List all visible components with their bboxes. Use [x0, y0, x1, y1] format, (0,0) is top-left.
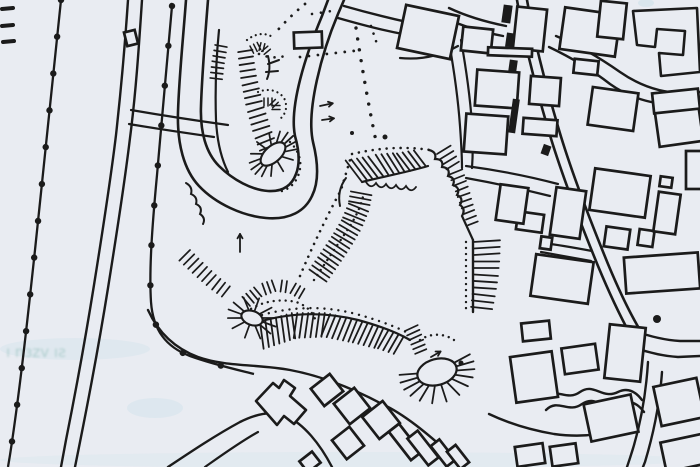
- ladder-nw-long-tick: [345, 213, 357, 218]
- building-footprint: [604, 226, 631, 249]
- building-footprint: [550, 443, 579, 466]
- se-knob-mound-tick: [447, 382, 460, 395]
- ladder-se-short-tick: [329, 265, 336, 270]
- building-footprint: [660, 434, 700, 467]
- ne-lobe-hachures-tick: [468, 221, 478, 225]
- nw-corner-line: [339, 178, 346, 206]
- building-footprint: [464, 114, 509, 155]
- ne-lobe-hachures-tick: [449, 169, 462, 174]
- road-steps-tick: [214, 50, 226, 52]
- ladder-se-short-tick: [320, 277, 327, 282]
- east-scarp-hachures-tick: [471, 307, 492, 309]
- east-scarp-hachures-tick: [474, 281, 497, 282]
- knob-nw-hachures-tick: [415, 349, 426, 354]
- building-footprint: [561, 344, 598, 374]
- solid-building-blob: [541, 144, 552, 156]
- ladder-se-short-tick: [359, 213, 366, 216]
- ne-lobe-hachures-tick: [446, 162, 459, 170]
- map-dot: [653, 315, 661, 323]
- north-rampart-fan-tick: [368, 157, 383, 177]
- south-rampart-fan-tick: [276, 318, 280, 344]
- west-bank-hachures-tick: [253, 126, 269, 131]
- se-knob-mound-outline: [414, 354, 459, 389]
- building-footprint: [686, 151, 700, 189]
- north-rampart-scallops: [366, 182, 416, 190]
- ladder-se-short-tick: [332, 261, 339, 266]
- building-footprint: [588, 87, 639, 131]
- bent-bank-hachures-tick: [246, 294, 254, 303]
- lane-upper: [131, 110, 228, 125]
- oval-mound-nw-tick: [284, 149, 296, 151]
- south-rampart-fan-tick: [271, 319, 275, 345]
- building-footprint: [589, 168, 650, 217]
- bent-bank-hachures-tick: [272, 280, 276, 291]
- map-dot: [459, 361, 464, 366]
- map-dot: [350, 131, 354, 135]
- star-mound-sw-tick: [229, 309, 242, 314]
- below-u-road-fan-tick: [222, 286, 230, 296]
- oval-mound-nw-tick: [277, 161, 283, 171]
- road-steps-tick: [212, 61, 224, 63]
- west-bank-hachures-tick: [251, 120, 267, 125]
- ladder-nw-long-tick: [347, 208, 359, 213]
- antler-3: [266, 71, 278, 72]
- building-footprint: [510, 351, 558, 402]
- ladder-se-short-tick: [326, 269, 333, 274]
- road-steps-tick: [211, 67, 223, 68]
- star-mound-sw-tick: [262, 322, 275, 327]
- ladder-se-short-tick: [361, 209, 368, 212]
- ladder-se-short-tick: [348, 235, 355, 239]
- ladder-nw-long-tick: [350, 196, 363, 198]
- ne-lobed-scarp: [429, 150, 473, 240]
- west-bank-hachures-tick: [238, 50, 252, 52]
- oval-mound-nw-tick: [262, 166, 267, 177]
- south-rampart-fan-tick: [299, 313, 302, 338]
- west-bank-hachures-tick: [246, 101, 262, 105]
- ne-lobe-hachures-tick: [454, 181, 466, 186]
- south-rampart-fan-tick: [305, 313, 308, 337]
- knob-nw-hachures-tick: [413, 344, 425, 349]
- se-knob-dotted-arc: [420, 335, 454, 340]
- bent-bank-hachures-tick: [267, 282, 271, 293]
- building-footprint: [653, 192, 680, 235]
- ladder-se-short-tick: [350, 231, 357, 235]
- map-canvas: ı nɜzv ıƨ: [0, 0, 700, 467]
- east-scarp-hachures-tick: [472, 300, 494, 302]
- building-footprint: [488, 47, 532, 57]
- ladder-se-short-tick: [337, 252, 344, 256]
- se-knob-mound-tick: [400, 374, 418, 375]
- below-u-road-fan-tick: [188, 258, 198, 268]
- building-footprint: [653, 378, 700, 426]
- below-u-road-fan-tick: [212, 279, 220, 290]
- bent-bank-hachures-tick: [295, 286, 301, 296]
- se-knob-mound-tick: [456, 369, 474, 370]
- building-footprint: [604, 324, 645, 381]
- north-rampart-fan-tick: [408, 151, 421, 168]
- building-footprint: [529, 76, 561, 106]
- knob-nw-hachures-tick: [405, 325, 418, 331]
- west-bank-hachures-tick: [240, 69, 255, 71]
- bent-bank-hachures-tick: [254, 287, 262, 296]
- north-rampart-fan-tick: [387, 154, 399, 173]
- scan-smudge: [127, 398, 183, 418]
- ladder-se-short-tick: [363, 199, 371, 200]
- parish-boundary-west: [8, 0, 61, 467]
- building-footprint: [397, 5, 459, 59]
- edge-tick-3: [3, 41, 14, 42]
- lane-to-castle-ns-1: [449, 42, 462, 168]
- north-rampart-fan-tick: [381, 154, 394, 174]
- north-rampart-fan-tick: [414, 150, 426, 166]
- hook1-hachures-tick: [264, 49, 270, 54]
- ne-lobe-hachures-tick: [437, 146, 451, 154]
- building-footprint: [515, 443, 546, 467]
- building-footprint: [530, 254, 593, 304]
- building-footprint: [584, 394, 639, 441]
- star-mound-sw-tick: [234, 302, 245, 311]
- se-knob-mound-tick: [455, 375, 473, 378]
- below-u-road-fan-tick: [193, 263, 203, 273]
- ne-lobe-hachures-tick: [443, 156, 456, 164]
- scan-smudge: [638, 0, 654, 7]
- west-bank-hachures-tick: [245, 95, 260, 99]
- antler-1: [267, 56, 269, 79]
- north-rampart-fan-tick: [403, 152, 416, 169]
- ne-lobe-hachures-tick: [462, 205, 473, 209]
- west-bank-hachures-tick: [243, 82, 258, 85]
- bent-bank-hachures-tick: [285, 281, 287, 292]
- ladder-se-short-tick: [343, 244, 350, 248]
- south-rampart-fan-tick: [281, 316, 284, 342]
- ladder-se-short-tick: [357, 218, 364, 221]
- east-scarp-hachures-tick: [473, 240, 500, 242]
- bent-bank-hachures-tick: [299, 289, 305, 299]
- road-steps-tick: [210, 78, 222, 79]
- building-footprint: [513, 7, 547, 52]
- building-footprint: [124, 30, 138, 46]
- building-footprint: [624, 252, 700, 293]
- west-bank-hachures-tick: [241, 76, 256, 78]
- ladder-se-short-tick: [323, 273, 330, 278]
- se-knob-mound-tick: [452, 379, 468, 387]
- edge-tick-2: [2, 25, 13, 26]
- east-scarp-hachures-tick: [474, 253, 500, 255]
- ne-lobe-hachures-tick: [464, 210, 474, 214]
- south-rampart-fan-tick: [286, 315, 289, 341]
- east-scarp-hachures-tick: [473, 294, 495, 296]
- bent-bank-hachures-tick: [290, 283, 296, 293]
- courtyard-building: [633, 8, 700, 76]
- south-rampart-fan-tick: [316, 313, 319, 337]
- bent-bank-hachures-tick: [262, 284, 266, 295]
- ladder-se-short-tick: [345, 240, 352, 244]
- oval-mound-nw-tick: [276, 131, 280, 142]
- ne-lobe-hachures-tick: [458, 193, 470, 197]
- star-mound-sw-tick: [245, 325, 250, 338]
- east-scarp-hachures-tick: [473, 287, 496, 288]
- west-bank-hachures-tick: [240, 63, 254, 65]
- ladder-se-short-tick: [364, 194, 372, 195]
- below-u-road-fan-tick: [217, 283, 225, 293]
- bent-bank-hachures-tick: [250, 291, 258, 300]
- knob-nw-hachures-tick: [411, 340, 423, 345]
- hook1-hachures-tick: [254, 44, 258, 51]
- scanned-map-page: ı nɜzv ıƨ: [0, 0, 700, 467]
- ladder-nw-long-tick: [349, 204, 361, 209]
- star-mound-sw-tick: [255, 326, 260, 339]
- below-u-road-fan-tick: [197, 267, 207, 277]
- east-scarp-hachures-tick: [474, 274, 498, 276]
- ladder-se-short-tick: [362, 204, 370, 205]
- se-knob-mound-tick: [401, 378, 418, 383]
- below-u-road-fan-tick: [207, 275, 216, 285]
- building-footprint: [496, 184, 529, 224]
- edge-tick-1: [2, 8, 13, 9]
- bleed-through-text: ı nɜzv ıƨ: [6, 343, 66, 361]
- west-bank-hachures-tick: [239, 56, 253, 58]
- flow-arrow-2-head: [328, 102, 333, 104]
- west-bank-hachures-tick: [248, 107, 264, 112]
- se-knob-mound-tick: [432, 385, 435, 403]
- solid-building-blob: [501, 4, 512, 23]
- ladder-nw-long-tick: [339, 225, 350, 232]
- map-dot: [383, 135, 388, 140]
- enclosure-north-edge: [352, 148, 430, 154]
- ladder-nw-long-tick: [351, 191, 364, 193]
- knob-nw-hachures-tick: [407, 330, 419, 336]
- ne-lobe-hachures-tick: [440, 151, 453, 159]
- road-steps-tick: [211, 72, 223, 73]
- road-steps-tick: [213, 56, 225, 58]
- road-a-west-edge: [61, 0, 128, 467]
- north-rampart-fan-tick: [376, 155, 389, 175]
- south-rampart-fan-tick: [310, 313, 313, 337]
- building-footprint: [521, 321, 551, 342]
- ladder-se-short-tick: [353, 227, 360, 231]
- west-bank-hachures-tick: [244, 88, 259, 91]
- ladder-se-short-tick: [340, 248, 347, 252]
- building-footprint: [294, 32, 323, 49]
- hook-dotted-1: [247, 34, 274, 40]
- dotted-top-path: [356, 28, 377, 146]
- church-like-building: [256, 380, 306, 425]
- ne-lobe-hachures-tick: [466, 216, 476, 220]
- oval-mound-nw-tick: [282, 157, 293, 160]
- bent-bank-hachures-tick: [280, 280, 282, 291]
- building-footprint: [573, 59, 598, 75]
- star-mound-sw-tick: [254, 298, 259, 311]
- building-footprint: [522, 118, 557, 136]
- below-u-road-fan-tick: [202, 271, 211, 281]
- building-footprint: [652, 89, 700, 114]
- road-a-east-edge: [75, 0, 142, 467]
- building-footprint: [550, 187, 586, 239]
- east-scarp-hachures-tick: [473, 247, 499, 249]
- se-knob-mound-tick: [420, 385, 429, 400]
- west-bank-hachures-tick: [250, 113, 266, 118]
- ladder-se-short-tick: [334, 257, 341, 261]
- ladder-nw-long-tick: [349, 201, 362, 203]
- dotted-diag-top: [276, 4, 305, 32]
- ladder-se-short-tick: [355, 222, 362, 225]
- oval-mound-nw-tick: [269, 133, 271, 145]
- building-footprint: [597, 1, 627, 40]
- solid-building-blob: [508, 60, 518, 73]
- building-footprint: [540, 236, 553, 249]
- oval-mound-nw-tick: [271, 164, 272, 176]
- building-footprint: [659, 176, 672, 188]
- star-mound-sw-tick: [232, 322, 244, 329]
- se-knob-mound-tick: [441, 384, 447, 401]
- oval-mound-nw-tick: [250, 159, 261, 163]
